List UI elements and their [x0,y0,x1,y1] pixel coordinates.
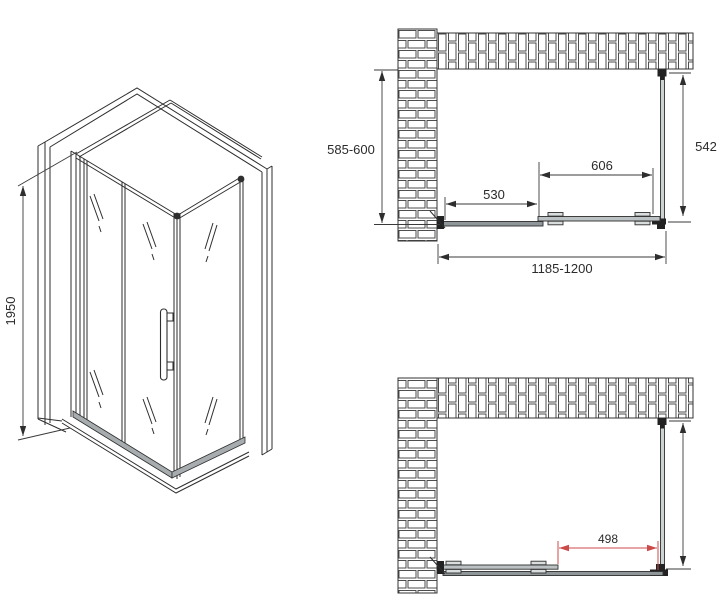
height-dimension-label: 1950 [3,297,18,326]
plan-view-door-closed: 585-600 542 530 606 1185-1200 [327,29,717,276]
door-segment-dimension: 606 [540,158,653,214]
side-panel-dimension: 542 [668,73,717,222]
depth-dimension-label: 585-600 [327,142,375,157]
door-segment-dimension-label: 606 [591,158,613,173]
shower-tray [38,411,249,493]
fixed-segment-dimension: 530 [445,162,539,220]
top-frame [76,100,262,219]
width-dimension-label: 1185-1200 [531,261,592,276]
brick-walls [398,29,693,241]
door-opening-dimension-label: 498 [598,532,618,546]
side-panel-dimension-label: 542 [695,139,717,154]
side-panel [650,418,668,576]
door-handle [161,309,174,380]
glass-reflection-marks [90,194,217,435]
height-dimension: 1950 [3,152,77,440]
side-height-dimension-unlabeled [666,421,691,569]
front-track [430,211,660,229]
side-panel [652,70,667,230]
front-track [430,557,663,576]
technical-drawing-sheet: 1950 [0,0,721,600]
width-dimension: 1185-1200 [438,231,666,276]
isometric-view: 1950 [3,88,272,493]
fixed-segment-dimension-label: 530 [483,187,505,202]
door-opening-dimension: 498 [558,532,658,570]
plan-view-door-open: 498 [398,378,693,593]
back-walls [38,88,272,455]
